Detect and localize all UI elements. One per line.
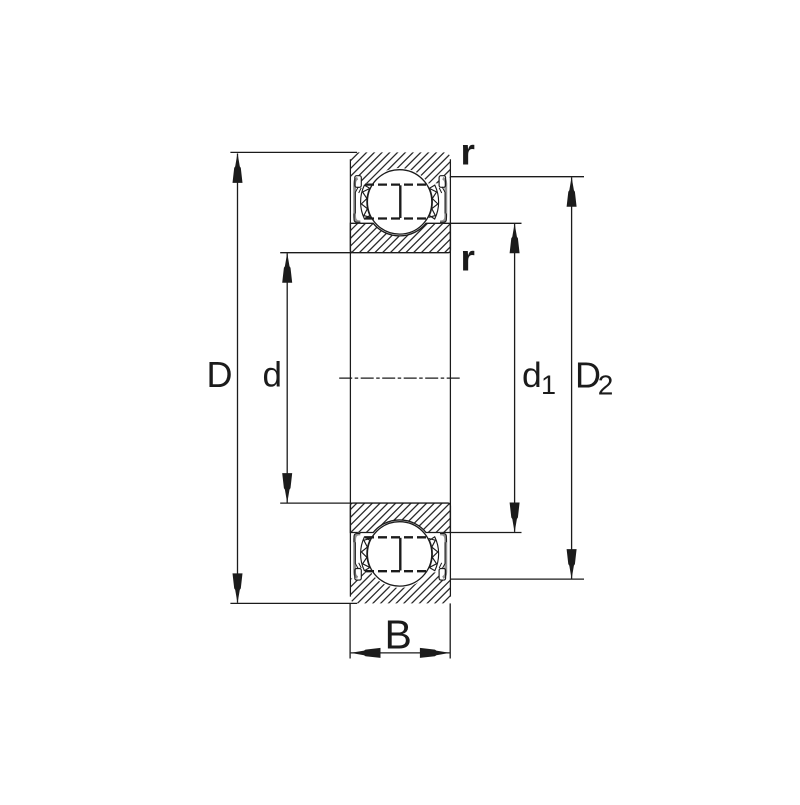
svg-text:D: D — [207, 354, 233, 395]
svg-text:1: 1 — [541, 370, 556, 400]
svg-text:B: B — [385, 611, 412, 657]
svg-text:r: r — [461, 238, 475, 279]
svg-text:r: r — [461, 132, 475, 173]
svg-text:d: d — [263, 356, 282, 395]
svg-text:d: d — [522, 355, 542, 395]
svg-text:2: 2 — [598, 370, 614, 401]
